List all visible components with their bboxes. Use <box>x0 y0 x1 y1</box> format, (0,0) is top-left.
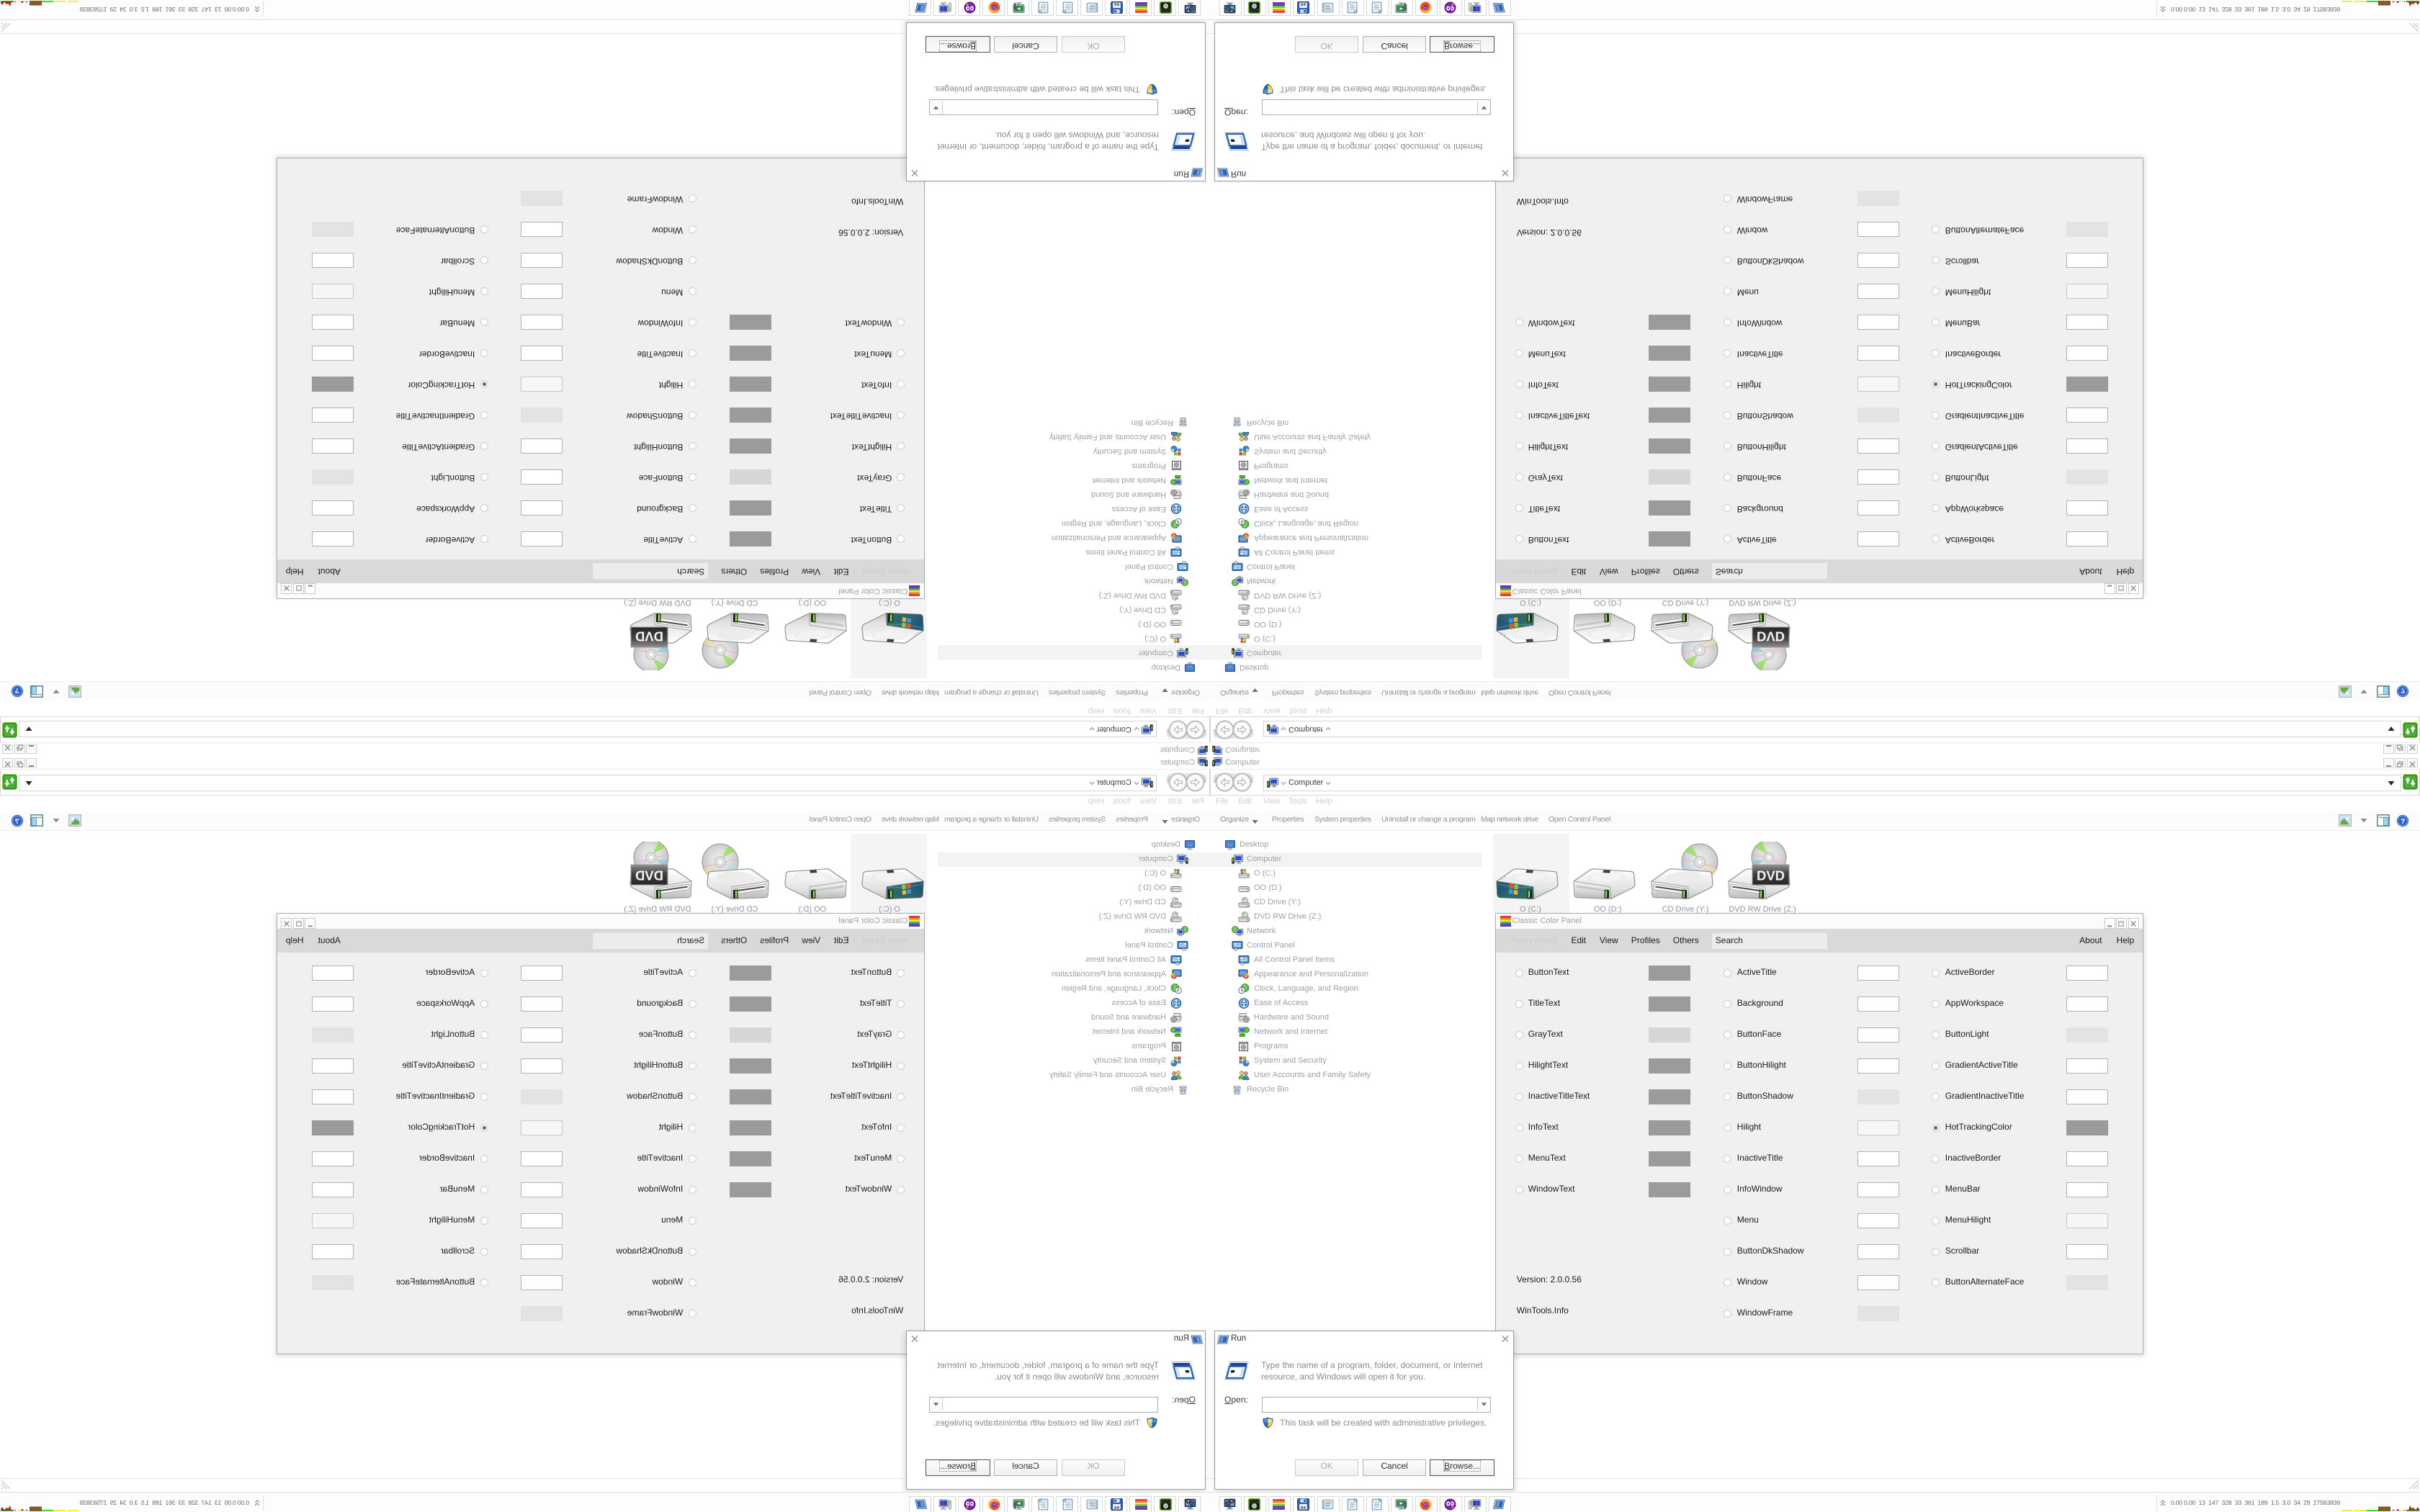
svg-text:64: 64 <box>1301 1505 1306 1510</box>
svg-text:DVD: DVD <box>1757 629 1785 644</box>
svg-text:DVD: DVD <box>635 868 663 883</box>
svg-text:?: ? <box>15 686 19 695</box>
svg-text:?: ? <box>2401 817 2405 826</box>
svg-text:DVD: DVD <box>635 629 663 644</box>
svg-text:64: 64 <box>1114 2 1119 7</box>
svg-text:64: 64 <box>1301 2 1306 7</box>
svg-text:?: ? <box>2401 686 2405 695</box>
svg-text:?: ? <box>15 817 19 826</box>
svg-text:64: 64 <box>1114 1505 1119 1510</box>
svg-text:DVD: DVD <box>1757 868 1785 883</box>
